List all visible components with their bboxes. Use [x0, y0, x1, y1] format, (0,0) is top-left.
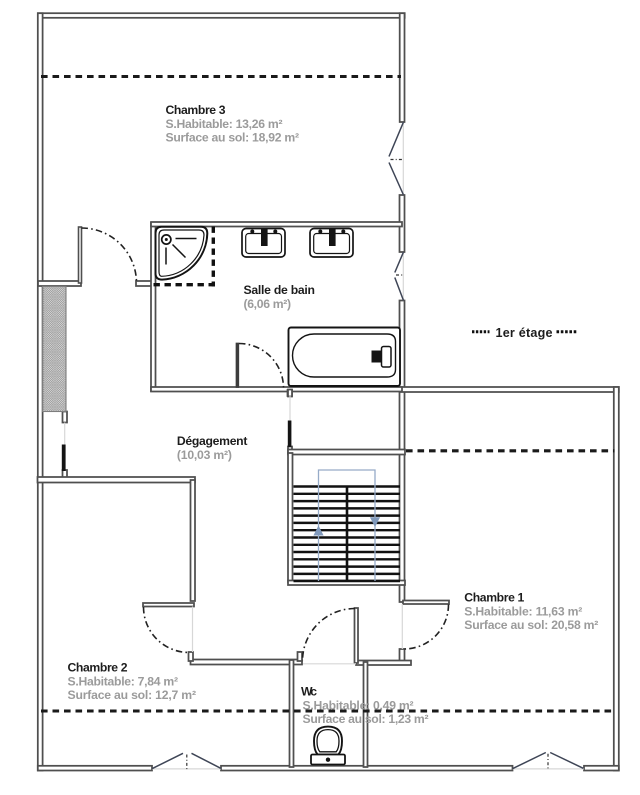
- svg-text:(6,06 m²): (6,06 m²): [244, 297, 292, 311]
- svg-text:S.Habitable: 13,26 m²: S.Habitable: 13,26 m²: [166, 117, 283, 131]
- svg-text:Wc: Wc: [301, 685, 317, 699]
- svg-text:Chambre 1: Chambre 1: [464, 591, 524, 605]
- svg-text:Dégagement: Dégagement: [177, 434, 248, 448]
- svg-text:1er étage: 1er étage: [496, 326, 553, 340]
- svg-text:S.Habitable: 7,84 m²: S.Habitable: 7,84 m²: [68, 674, 179, 688]
- svg-text:Surface au sol: 20,58 m²: Surface au sol: 20,58 m²: [464, 618, 598, 632]
- svg-text:Chambre 3: Chambre 3: [166, 103, 226, 117]
- svg-text:Chambre 2: Chambre 2: [68, 661, 128, 675]
- svg-text:S.Habitable: 0,49 m²: S.Habitable: 0,49 m²: [303, 698, 414, 712]
- svg-text:S.Habitable: 11,63 m²: S.Habitable: 11,63 m²: [464, 604, 582, 618]
- svg-text:Surface au sol: 18,92 m²: Surface au sol: 18,92 m²: [166, 131, 300, 145]
- svg-text:Surface au sol: 12,7 m²: Surface au sol: 12,7 m²: [68, 688, 197, 702]
- svg-text:(10,03 m²): (10,03 m²): [177, 448, 232, 462]
- svg-text:Surface au sol: 1,23 m²: Surface au sol: 1,23 m²: [303, 712, 429, 726]
- svg-text:Salle de bain: Salle de bain: [244, 283, 316, 297]
